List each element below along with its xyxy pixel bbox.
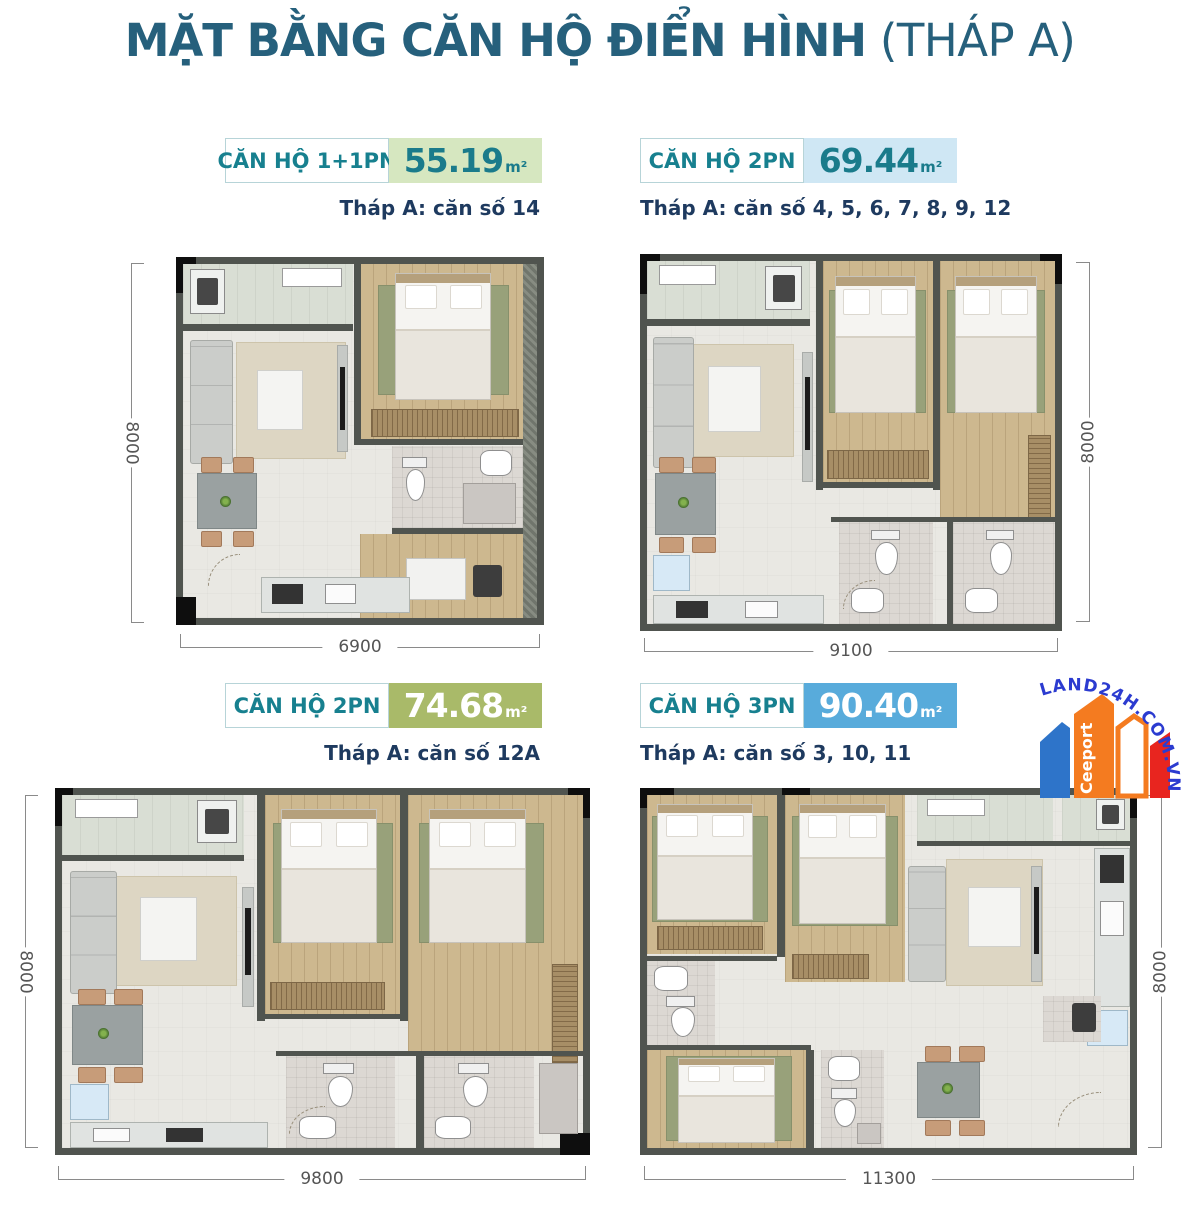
toilet-tank [986, 530, 1015, 541]
shower [857, 1123, 881, 1144]
bathroom-sink [828, 1056, 859, 1081]
bed [281, 809, 377, 943]
corner-block [560, 1133, 590, 1155]
unit-4-area-unit: m² [920, 703, 942, 721]
kitchen-sink [1100, 901, 1124, 936]
interior-wall [416, 1056, 424, 1148]
shower [539, 1063, 578, 1134]
dining-chair [659, 457, 683, 473]
toilet-tank [402, 457, 427, 468]
floor-plan-unit-3 [55, 788, 590, 1155]
coffee-table [708, 366, 761, 431]
unit-3-height-dimension: 8000 [12, 795, 38, 1148]
page-title-suffix: (THÁP A) [866, 14, 1075, 67]
dining-chair [233, 531, 254, 547]
interior-wall [360, 439, 523, 445]
interior-wall [947, 522, 954, 624]
bathroom-sink [480, 450, 512, 477]
land24h-watermark: Ceeport LAND24H.COM.VN [1028, 630, 1188, 800]
bathroom-sink [435, 1116, 471, 1139]
desk [406, 558, 466, 600]
unit-2-caption: Tháp A: căn số 4, 5, 6, 7, 8, 9, 12 [640, 196, 1011, 220]
unit-1-height-dimension: 8000 [118, 263, 144, 623]
page-title-main: MẶT BẰNG CĂN HỘ ĐIỂN HÌNH [125, 14, 866, 67]
unit-2-height-dimension: 8000 [1076, 262, 1102, 622]
toilet-tank [323, 1063, 354, 1074]
shelf [659, 265, 716, 285]
dining-chair [114, 1067, 143, 1083]
unit-4-area-value: 90.40 [819, 686, 918, 725]
washing-machine [1072, 1003, 1096, 1031]
kitchen-sink [93, 1128, 129, 1143]
unit-3-type-label: CĂN HỘ 2PN [225, 683, 389, 728]
interior-wall [400, 795, 408, 1021]
washing-machine [190, 269, 225, 313]
interior-wall [183, 324, 353, 330]
stove [166, 1128, 202, 1143]
kitchen-sink [325, 584, 357, 603]
unit-2-badge: CĂN HỘ 2PN 69.44m² [640, 138, 957, 183]
unit-3-caption: Tháp A: căn số 12A [225, 741, 540, 765]
land24h-logo-graphic: Ceeport LAND24H.COM.VN [1028, 630, 1188, 800]
interior-wall [62, 855, 244, 861]
plant [678, 497, 689, 508]
unit-4-area-badge: 90.40m² [804, 683, 957, 728]
dimension-label: 9800 [284, 1167, 359, 1191]
bed [678, 1058, 775, 1143]
dining-chair [959, 1046, 986, 1062]
sofa [70, 871, 117, 995]
tv [340, 367, 345, 431]
bathroom-sink [654, 966, 688, 991]
office-chair [473, 565, 501, 597]
sofa [908, 866, 947, 982]
unit-1-area-badge: 55.19m² [389, 138, 542, 183]
tv [1034, 887, 1039, 954]
unit-3-area-badge: 74.68m² [389, 683, 542, 728]
interior-wall [806, 1050, 813, 1148]
kitchen-sink [745, 601, 778, 617]
floor-plan-unit-2 [640, 254, 1062, 631]
interior-wall [777, 795, 784, 957]
interior-wall [933, 261, 940, 490]
door-arc [1058, 1092, 1101, 1127]
unit-3-type-text: CĂN HỘ 2PN [234, 694, 381, 718]
door-arc [208, 554, 240, 586]
shelf [927, 799, 985, 817]
dining-chair [78, 989, 107, 1005]
dining-chair [78, 1067, 107, 1083]
wardrobe [552, 964, 578, 1063]
unit-2-width-dimension: 9100 [644, 638, 1058, 664]
wardrobe [1028, 435, 1050, 529]
interior-wall [823, 482, 933, 488]
bed [955, 276, 1037, 414]
logo-blue-building [1040, 722, 1070, 798]
plant [220, 496, 231, 507]
bed [395, 273, 491, 400]
sofa [190, 340, 232, 464]
unit-2-area-badge: 69.44m² [804, 138, 957, 183]
wardrobe [371, 409, 520, 437]
unit-1-type-label: CĂN HỘ 1+1PN [225, 138, 389, 183]
dimension-label: 8000 [1073, 417, 1106, 466]
dining-chair [233, 457, 254, 473]
interior-wall [917, 841, 1130, 846]
page-title: MẶT BẰNG CĂN HỘ ĐIỂN HÌNH (THÁP A) [0, 14, 1200, 67]
unit-2-area-value: 69.44 [819, 141, 918, 180]
unit-1-width-dimension: 6900 [180, 634, 540, 660]
shelf [282, 268, 342, 287]
interior-wall [354, 264, 360, 445]
interior-wall [816, 261, 823, 490]
wardrobe [827, 450, 929, 479]
unit-1-caption: Tháp A: căn số 14 [225, 196, 540, 220]
washing-machine [197, 800, 236, 842]
sofa [653, 337, 694, 468]
dining-chair [959, 1120, 986, 1136]
shelf [75, 799, 138, 818]
dining-chair [201, 457, 222, 473]
washing-machine [1096, 799, 1125, 831]
dining-chair [201, 531, 222, 547]
floor-plan-unit-1 [176, 257, 544, 625]
bed [657, 804, 754, 920]
unit-4-caption: Tháp A: căn số 3, 10, 11 [640, 741, 911, 765]
wardrobe [270, 982, 385, 1010]
unit-3-width-dimension: 9800 [58, 1166, 586, 1192]
logo-brand-text: Ceeport [1077, 722, 1096, 794]
logo-outline-building [1118, 716, 1146, 796]
toilet-tank [831, 1088, 858, 1099]
dining-chair [659, 537, 683, 553]
toilet-tank [871, 530, 900, 541]
fridge [653, 555, 690, 591]
unit-4-badge: CĂN HỘ 3PN 90.40m² [640, 683, 957, 728]
unit-1-area-unit: m² [505, 158, 527, 176]
unit-3-area-unit: m² [505, 703, 527, 721]
floor-plan-sheet: MẶT BẰNG CĂN HỘ ĐIỂN HÌNH (THÁP A) CĂN H… [0, 0, 1200, 1213]
unit-2-area-unit: m² [920, 158, 942, 176]
tv [805, 377, 809, 450]
wardrobe [792, 954, 869, 979]
coffee-table [968, 887, 1021, 947]
unit-1-area-value: 55.19 [404, 141, 503, 180]
toilet-tank [458, 1063, 489, 1074]
dining-chair [925, 1046, 952, 1062]
interior-wall [647, 319, 810, 326]
unit-2-type-text: CĂN HỘ 2PN [649, 149, 796, 173]
shower [463, 483, 516, 524]
dining-chair [114, 989, 143, 1005]
interior-wall [265, 1014, 400, 1019]
bathroom-sink [965, 588, 998, 613]
unit-4-width-dimension: 11300 [644, 1166, 1134, 1192]
dimension-label: 8000 [9, 947, 42, 996]
corner-block [176, 597, 196, 625]
dining-chair [692, 457, 716, 473]
bed [429, 809, 525, 943]
washing-machine [765, 266, 802, 310]
unit-3-area-value: 74.68 [404, 686, 503, 725]
fridge [70, 1084, 109, 1119]
dimension-label: 6900 [322, 635, 397, 659]
unit-1-badge: CĂN HỘ 1+1PN 55.19m² [225, 138, 542, 183]
service-hatch [523, 264, 537, 618]
dimension-label: 8000 [115, 418, 148, 467]
dining-chair [925, 1120, 952, 1136]
dimension-label: 8000 [1145, 947, 1178, 996]
dining-chair [692, 537, 716, 553]
wardrobe [657, 926, 763, 951]
unit-2-type-label: CĂN HỘ 2PN [640, 138, 804, 183]
plant [942, 1083, 953, 1094]
coffee-table [257, 370, 303, 430]
unit-3-badge: CĂN HỘ 2PN 74.68m² [225, 683, 542, 728]
unit-4-type-label: CĂN HỘ 3PN [640, 683, 804, 728]
unit-1-type-text: CĂN HỘ 1+1PN [217, 149, 396, 173]
coffee-table [140, 897, 197, 961]
unit-4-type-text: CĂN HỘ 3PN [649, 694, 796, 718]
interior-wall [257, 795, 265, 1021]
toilet-tank [666, 996, 695, 1007]
stove [1100, 855, 1124, 883]
tv [245, 908, 250, 975]
stove [272, 584, 304, 603]
dimension-label: 9100 [813, 639, 888, 663]
bed [799, 804, 886, 924]
dimension-label: 11300 [846, 1167, 932, 1191]
bed [835, 276, 917, 414]
stove [676, 601, 709, 617]
unit-4-height-dimension: 8000 [1148, 795, 1174, 1148]
floor-plan-unit-4 [640, 788, 1137, 1155]
